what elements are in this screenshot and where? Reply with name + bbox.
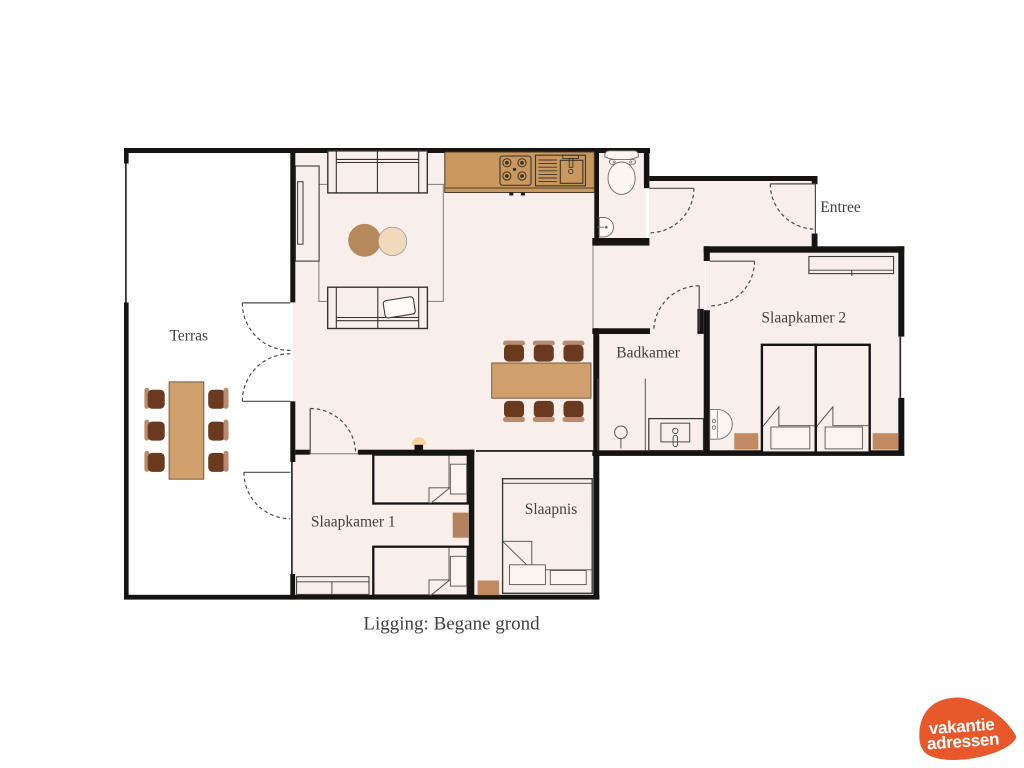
svg-text:Ligging: Begane grond: Ligging: Begane grond xyxy=(363,614,540,635)
svg-text:Entree: Entree xyxy=(820,199,861,216)
svg-text:Terras: Terras xyxy=(170,328,209,345)
svg-text:Slaapnis: Slaapnis xyxy=(525,501,578,518)
svg-text:Slaapkamer 1: Slaapkamer 1 xyxy=(311,514,396,531)
svg-text:Slaapkamer 2: Slaapkamer 2 xyxy=(761,310,846,327)
svg-text:Badkamer: Badkamer xyxy=(616,345,681,362)
